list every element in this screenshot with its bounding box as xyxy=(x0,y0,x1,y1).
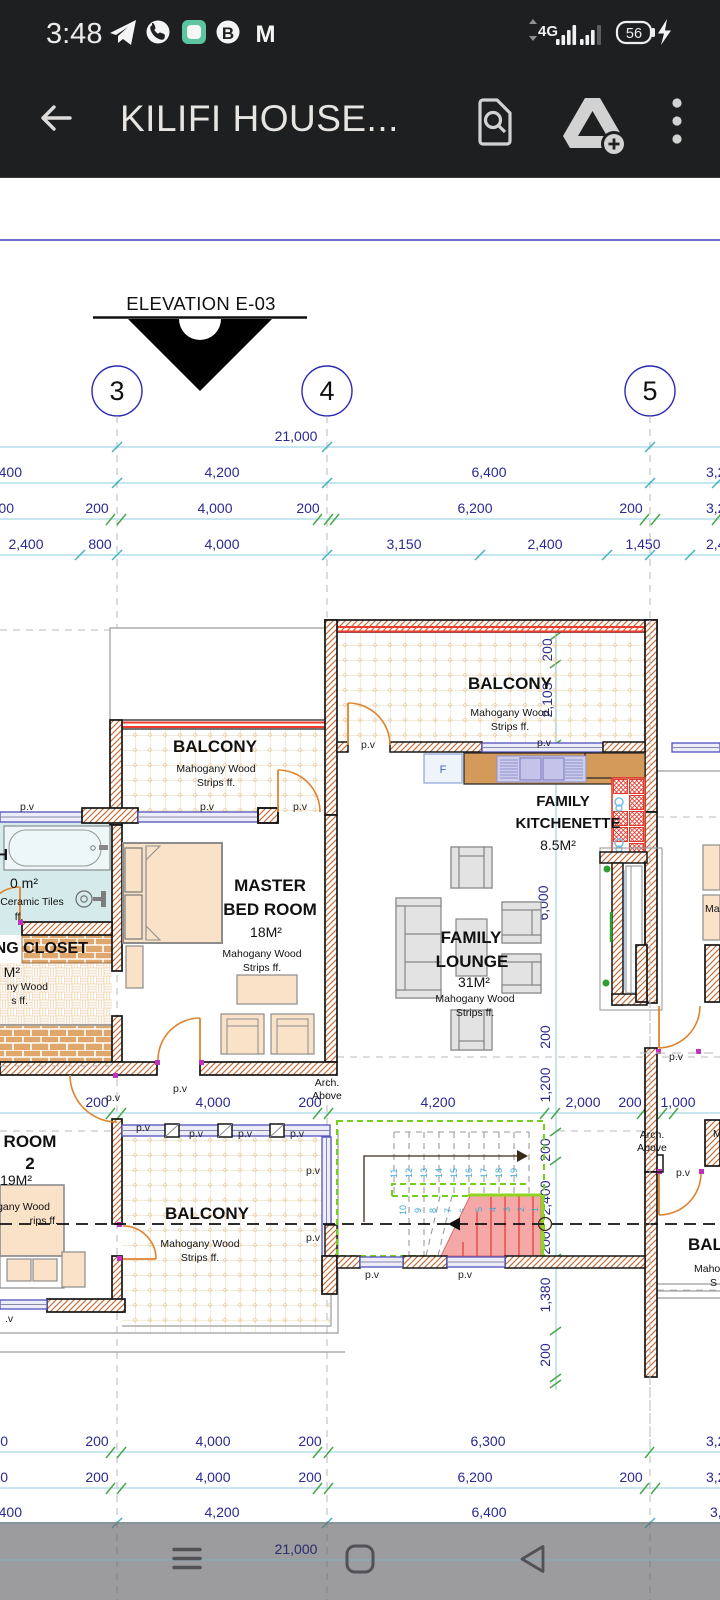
svg-text:Maho: Maho xyxy=(694,1263,720,1275)
svg-text:p.v: p.v xyxy=(293,801,308,813)
svg-text:Strips ff.: Strips ff. xyxy=(197,777,235,789)
svg-text:BALCONY: BALCONY xyxy=(165,1204,250,1223)
svg-text:3,2: 3,2 xyxy=(706,1433,720,1449)
svg-text:4,000: 4,000 xyxy=(195,1094,230,1110)
svg-text:4: 4 xyxy=(319,376,334,406)
svg-text:ny Wood: ny Wood xyxy=(7,981,48,993)
svg-text:Arch.: Arch. xyxy=(315,1077,340,1089)
svg-text:Above: Above xyxy=(637,1142,667,1154)
svg-text:6,200: 6,200 xyxy=(457,500,492,516)
svg-text:1: 1 xyxy=(530,1207,540,1212)
svg-text:p.v: p.v xyxy=(676,1167,691,1179)
svg-text:s ff.: s ff. xyxy=(11,995,28,1007)
svg-text:ROOM: ROOM xyxy=(4,1132,57,1151)
svg-text:Ceramic Tiles: Ceramic Tiles xyxy=(0,896,64,908)
svg-text:gany Wood: gany Wood xyxy=(0,1201,50,1213)
svg-text:200: 200 xyxy=(298,1433,322,1449)
svg-text:0: 0 xyxy=(0,1433,8,1449)
svg-text:17: 17 xyxy=(479,1168,489,1178)
svg-text:rips ff.: rips ff. xyxy=(30,1215,58,1227)
svg-text:10: 10 xyxy=(398,1205,408,1215)
svg-text:Arch.: Arch. xyxy=(640,1129,665,1141)
svg-text:p.v: p.v xyxy=(173,1083,188,1095)
svg-text:3:48: 3:48 xyxy=(46,18,102,50)
svg-text:1,380: 1,380 xyxy=(537,1277,553,1312)
svg-text:3,150: 3,150 xyxy=(386,536,421,552)
svg-text:8: 8 xyxy=(428,1208,438,1213)
svg-text:S: S xyxy=(710,1277,717,1289)
svg-text:Mahogany Wood: Mahogany Wood xyxy=(176,763,255,775)
svg-text:3: 3 xyxy=(502,1207,512,1212)
svg-text:ING CLOSET: ING CLOSET xyxy=(0,940,88,957)
svg-text:p.v: p.v xyxy=(136,1122,151,1134)
svg-text:p.v: p.v xyxy=(669,1051,684,1063)
svg-text:1,200: 1,200 xyxy=(537,1067,553,1102)
svg-text:Ma: Ma xyxy=(705,903,720,915)
svg-text:7: 7 xyxy=(443,1208,453,1213)
svg-text:4,000: 4,000 xyxy=(204,536,239,552)
svg-text:FAMILY: FAMILY xyxy=(441,928,502,947)
svg-text:6,400: 6,400 xyxy=(471,464,506,480)
svg-text:400: 400 xyxy=(0,1504,22,1520)
svg-text:p.v: p.v xyxy=(365,1269,380,1281)
svg-text:Above: Above xyxy=(312,1090,342,1102)
svg-text:FAMILY: FAMILY xyxy=(536,793,590,810)
svg-text:p.v: p.v xyxy=(306,1165,321,1177)
svg-text:200: 200 xyxy=(618,1094,642,1110)
svg-text:4G: 4G xyxy=(538,23,558,40)
svg-text:H: H xyxy=(0,847,8,864)
svg-text:11: 11 xyxy=(389,1169,399,1178)
svg-text:19: 19 xyxy=(509,1168,519,1178)
svg-text:4,200: 4,200 xyxy=(204,1504,239,1520)
svg-text:18: 18 xyxy=(494,1168,504,1178)
svg-text:21,000: 21,000 xyxy=(275,1541,318,1557)
svg-text:2: 2 xyxy=(25,1154,34,1173)
svg-text:31M²: 31M² xyxy=(458,974,490,990)
svg-text:200: 200 xyxy=(85,1433,109,1449)
svg-text:p.v: p.v xyxy=(106,1092,121,1104)
svg-text:2: 2 xyxy=(516,1207,526,1212)
svg-text:6,400: 6,400 xyxy=(471,1504,506,1520)
svg-text:16: 16 xyxy=(464,1168,474,1178)
svg-text:3,2: 3,2 xyxy=(706,500,720,516)
svg-text:2,400: 2,400 xyxy=(8,536,43,552)
svg-text:.v: .v xyxy=(5,1313,14,1325)
svg-text:B: B xyxy=(222,24,234,43)
svg-text:4,200: 4,200 xyxy=(204,464,239,480)
svg-text:Mahogany Wood: Mahogany Wood xyxy=(222,948,301,960)
svg-text:p.v: p.v xyxy=(200,801,215,813)
svg-text:p.v: p.v xyxy=(458,1269,473,1281)
svg-text:4,000: 4,000 xyxy=(195,1469,230,1485)
svg-text:p.v: p.v xyxy=(238,1128,253,1140)
svg-text:BALCONY: BALCONY xyxy=(173,737,258,756)
svg-text:ELEVATION E-03: ELEVATION E-03 xyxy=(126,293,276,314)
svg-text:56: 56 xyxy=(626,26,642,42)
svg-text:200: 200 xyxy=(537,1343,553,1367)
svg-text:p.v: p.v xyxy=(20,801,35,813)
svg-text:13: 13 xyxy=(419,1168,429,1178)
svg-text:Strips ff.: Strips ff. xyxy=(456,1007,494,1019)
svg-text:1,450: 1,450 xyxy=(625,536,660,552)
svg-text:6,300: 6,300 xyxy=(470,1433,505,1449)
svg-text:p.v: p.v xyxy=(361,739,376,751)
svg-text:200: 200 xyxy=(298,1469,322,1485)
svg-text:Strips ff.: Strips ff. xyxy=(181,1252,219,1264)
svg-text:p.v: p.v xyxy=(290,1128,305,1140)
svg-text:0: 0 xyxy=(0,1469,8,1485)
svg-text:BALC: BALC xyxy=(688,1235,720,1254)
svg-text:200: 200 xyxy=(85,500,109,516)
svg-text:800: 800 xyxy=(88,536,112,552)
svg-text:F: F xyxy=(440,764,447,776)
svg-text:9: 9 xyxy=(413,1208,423,1213)
svg-text:18M²: 18M² xyxy=(250,924,282,940)
svg-text:4,000: 4,000 xyxy=(197,500,232,516)
svg-text:2,4: 2,4 xyxy=(706,536,720,552)
svg-text:200: 200 xyxy=(619,500,643,516)
svg-text:15: 15 xyxy=(449,1168,459,1178)
svg-text:0 m²: 0 m² xyxy=(10,875,38,891)
svg-text:BED ROOM: BED ROOM xyxy=(223,900,317,919)
svg-text:2,000: 2,000 xyxy=(565,1094,600,1110)
svg-text:5: 5 xyxy=(474,1207,484,1212)
svg-text:M²: M² xyxy=(4,964,21,980)
svg-text:2,400: 2,400 xyxy=(527,536,562,552)
svg-text:3,: 3, xyxy=(710,1504,720,1520)
svg-text:4: 4 xyxy=(488,1207,498,1212)
svg-text:Mahogany Wood: Mahogany Wood xyxy=(160,1238,239,1250)
svg-text:p.v: p.v xyxy=(306,1232,321,1244)
svg-text:LOUNGE: LOUNGE xyxy=(436,952,509,971)
svg-text:Strips ff.: Strips ff. xyxy=(491,721,529,733)
svg-text:4,200: 4,200 xyxy=(420,1094,455,1110)
svg-text:p.v: p.v xyxy=(189,1128,204,1140)
svg-text:200: 200 xyxy=(296,500,320,516)
svg-text:21,000: 21,000 xyxy=(275,428,318,444)
svg-text:4,000: 4,000 xyxy=(195,1433,230,1449)
svg-text:KITCHENETTE: KITCHENETTE xyxy=(516,815,621,832)
svg-text:3,2: 3,2 xyxy=(706,464,720,480)
svg-text:1,000: 1,000 xyxy=(660,1094,695,1110)
svg-text:200: 200 xyxy=(537,1025,553,1049)
svg-text:12: 12 xyxy=(404,1168,414,1178)
svg-text:5: 5 xyxy=(642,376,657,406)
svg-text:8.5M²: 8.5M² xyxy=(540,837,576,853)
svg-text:Mahogany Wood: Mahogany Wood xyxy=(470,707,549,719)
svg-text:400: 400 xyxy=(0,464,22,480)
svg-text:ff.: ff. xyxy=(15,911,24,923)
svg-text:Mahogany Wood: Mahogany Wood xyxy=(435,993,514,1005)
svg-text:3: 3 xyxy=(109,376,124,406)
svg-text:00: 00 xyxy=(0,500,14,516)
svg-text:3,2: 3,2 xyxy=(706,1469,720,1485)
svg-text:KILIFI HOUSE...: KILIFI HOUSE... xyxy=(120,98,399,139)
svg-text:M: M xyxy=(256,21,275,48)
svg-text:M: M xyxy=(713,1128,720,1140)
svg-text:14: 14 xyxy=(434,1168,444,1178)
svg-text:200: 200 xyxy=(85,1469,109,1485)
svg-text:200: 200 xyxy=(619,1469,643,1485)
svg-text:6,200: 6,200 xyxy=(457,1469,492,1485)
svg-text:19M²: 19M² xyxy=(0,1172,32,1188)
svg-text:MASTER: MASTER xyxy=(234,876,306,895)
svg-text:p.v: p.v xyxy=(537,737,552,749)
svg-text:BALCONY: BALCONY xyxy=(468,674,553,693)
svg-text:Strips ff.: Strips ff. xyxy=(243,962,281,974)
